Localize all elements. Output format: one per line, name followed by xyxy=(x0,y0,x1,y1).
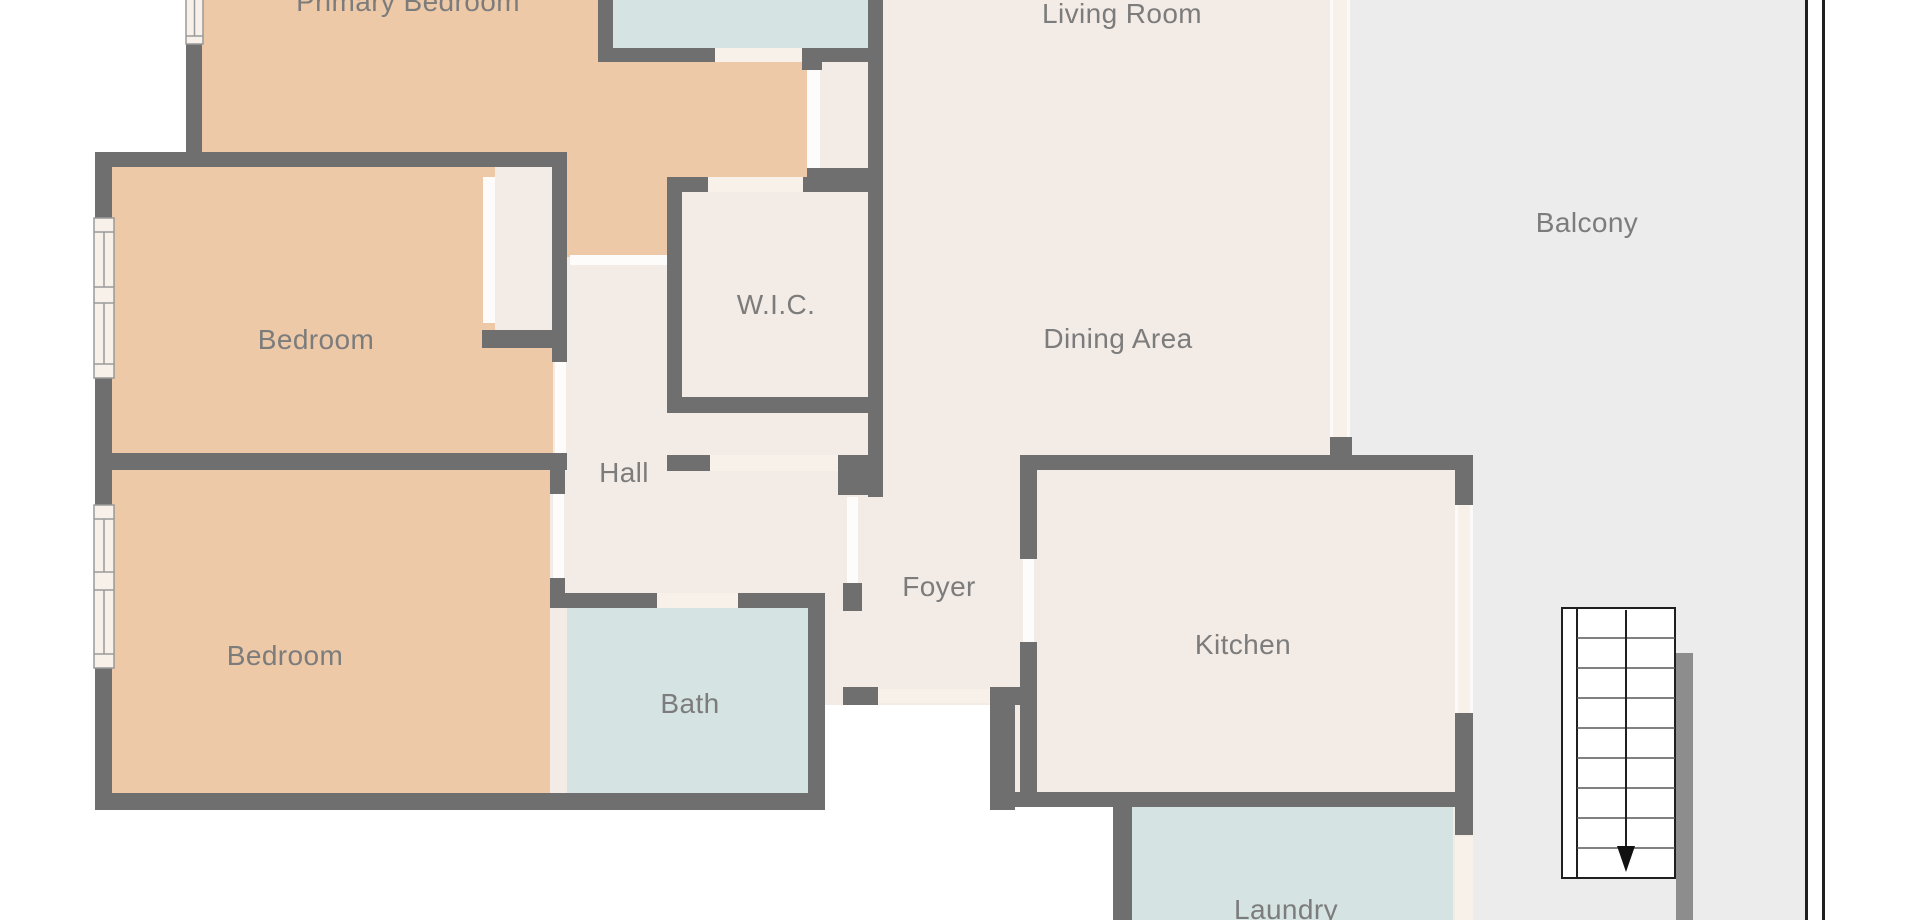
primary-bedroom-floor xyxy=(202,0,600,152)
kitchen-right-wall-lower xyxy=(1455,713,1473,835)
wic-door-opening xyxy=(708,177,803,192)
stair-side-wall xyxy=(1676,653,1693,920)
kitchen-balcony-door-frame-right xyxy=(1470,505,1473,713)
hall-foyer-door-leaf xyxy=(847,497,858,583)
room-label-balcony: Balcony xyxy=(1536,207,1638,239)
room-label-bedroom-1: Bedroom xyxy=(258,324,374,356)
room-label-hall: Hall xyxy=(599,457,649,489)
balcony-sliding-door xyxy=(1330,0,1350,437)
bedroom-1-door-leaf xyxy=(555,362,566,453)
wic-top-wall-right xyxy=(803,177,868,192)
room-label-bath: Bath xyxy=(660,688,719,720)
bedroom-2-door-leaf xyxy=(553,494,564,578)
hall-foyer-stub xyxy=(843,583,862,611)
primary-bath-door-opening xyxy=(715,48,802,62)
bedroom-2-floor xyxy=(112,470,550,793)
bedroom-1-closet-wall xyxy=(482,330,567,348)
staircase xyxy=(1562,608,1675,878)
closet-door-leaf xyxy=(807,70,820,168)
wic-left-wall xyxy=(667,177,682,413)
room-label-primary-bedroom: Primary Bedroom xyxy=(296,0,520,18)
railing-inner-line xyxy=(1805,0,1808,920)
bedroom-1-closet-floor xyxy=(495,165,552,332)
room-label-foyer: Foyer xyxy=(902,571,976,603)
outside-bottom xyxy=(0,810,1113,920)
kitchen-right-wall-upper xyxy=(1455,455,1473,505)
bedroom-divider-wall xyxy=(95,453,567,470)
divider-stub-wall xyxy=(1330,437,1352,458)
kitchen-bottom-wall xyxy=(1015,792,1473,807)
sliding-door-frame-right xyxy=(1347,0,1350,437)
primary-bath-floor xyxy=(613,0,868,48)
bedroom-1-top-wall xyxy=(95,152,567,167)
bath-top-wall-left xyxy=(550,593,657,608)
central-vertical-wall xyxy=(868,0,883,497)
hall-closet-stub xyxy=(838,455,880,495)
floor-plan-drawing xyxy=(0,0,1920,920)
closet-corner-stub xyxy=(802,48,822,70)
foyer-kitchen-door-leaf xyxy=(1023,559,1034,642)
railing-outer-line xyxy=(1822,0,1825,920)
primary-bedroom-window xyxy=(186,0,203,44)
entry-side-wall xyxy=(990,705,1015,810)
living-dining-floor xyxy=(883,0,1350,477)
room-label-living-room: Living Room xyxy=(1042,0,1202,30)
room-label-bedroom-2: Bedroom xyxy=(227,640,343,672)
bath-right-wall xyxy=(808,593,825,810)
staircase-outline xyxy=(1562,608,1675,878)
outside-notch-top-left xyxy=(95,0,186,152)
foyer-bottom-wall-left xyxy=(843,687,878,705)
room-label-kitchen: Kitchen xyxy=(1195,629,1291,661)
entry-door-opening xyxy=(878,689,990,703)
balcony-railing xyxy=(1805,0,1825,920)
wic-bottom-wall xyxy=(667,397,868,413)
kitchen-balcony-door-frame-left xyxy=(1455,505,1458,713)
sliding-door-frame-left xyxy=(1330,0,1333,437)
hall-closet-bottom-wall xyxy=(667,455,710,471)
hall-closet-opening xyxy=(710,455,838,471)
kitchen-left-wall-lower xyxy=(1020,642,1037,807)
kitchen-left-wall-upper xyxy=(1020,470,1037,559)
bedroom-1-closet-door-leaf xyxy=(483,177,495,323)
bedroom-2-window xyxy=(94,505,114,668)
primary-bedroom-passage-floor xyxy=(567,150,667,257)
outside-right xyxy=(1825,0,1920,920)
floor-plan: Primary Bedroom Living Room Balcony Bedr… xyxy=(0,0,1920,920)
room-label-laundry: Laundry xyxy=(1234,894,1338,920)
kitchen-balcony-opening xyxy=(1455,505,1473,713)
kitchen-top-wall xyxy=(1020,455,1473,470)
sliding-door-glass xyxy=(1333,0,1347,437)
primary-bath-bottom-wall-left xyxy=(598,48,715,62)
room-label-dining-area: Dining Area xyxy=(1043,323,1192,355)
room-label-wic: W.I.C. xyxy=(737,289,816,321)
outside-entry-recess xyxy=(825,705,990,810)
outer-bottom-wall xyxy=(95,793,825,810)
bath-door-opening xyxy=(657,593,738,608)
bedroom-2-right-wall-upper xyxy=(550,453,565,494)
laundry-left-wall xyxy=(1113,793,1132,920)
primary-bath-bottom-wall-right xyxy=(822,48,868,62)
bedroom-1-window xyxy=(94,218,114,378)
primary-bedroom-door-leaf xyxy=(570,255,667,265)
laundry-side-door-opening xyxy=(1455,837,1473,920)
